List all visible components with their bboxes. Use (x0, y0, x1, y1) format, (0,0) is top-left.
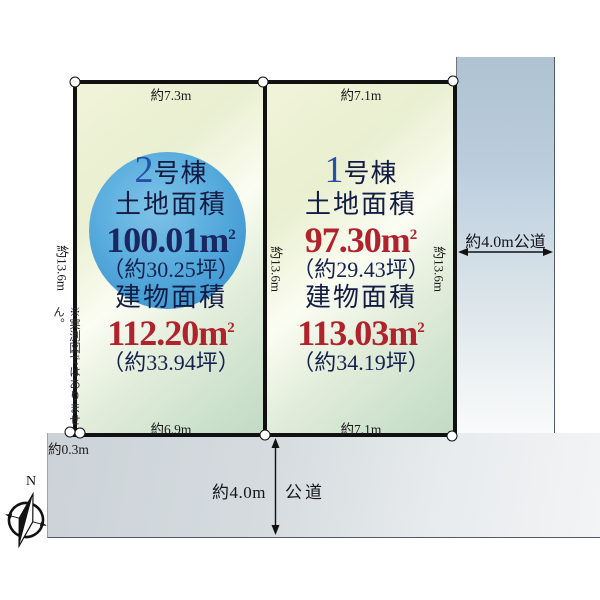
disclaimer-note: ※実測図ではありません。 (50, 306, 82, 438)
plot-2-title: 2号棟 (79, 153, 263, 191)
vertex-bottom-right (447, 431, 458, 442)
unit-sup: 2 (417, 320, 425, 336)
bottom-road-width-label: 約4.0m (184, 478, 266, 503)
dim-plot1-bottom: 約7.1m (269, 418, 453, 438)
unit-sup: 2 (228, 227, 236, 243)
plot-2-building-tsubo: （約33.94坪） (79, 349, 263, 377)
vertex-top-right (448, 76, 459, 87)
north-compass-icon: N (2, 468, 54, 562)
vertex-bottom-middle (260, 430, 271, 441)
plot-1-title: 1号棟 (269, 153, 453, 191)
plot-1-building-tsubo: （約34.19坪） (269, 349, 453, 377)
dim-plot2-bottom: 約6.9m (79, 418, 263, 438)
plot-2-info: 2号棟 土地面積 100.01m2 （約30.25坪） 建物面積 112.20m… (79, 153, 263, 377)
bottom-road-width-arrow (269, 437, 282, 536)
plot-1-land-label: 土地面積 (269, 191, 453, 219)
vertex-top-left (70, 77, 81, 88)
dim-plot2-top: 約7.3m (79, 84, 263, 104)
plot-1-land-tsubo: （約29.43坪） (269, 256, 453, 284)
neighbor-block (556, 57, 600, 435)
unit-sup: 2 (227, 320, 235, 336)
lot-layout-diagram: 2号棟 土地面積 100.01m2 （約30.25坪） 建物面積 112.20m… (0, 0, 600, 600)
unit-m: m (388, 313, 417, 353)
plot-1-number: 1 (324, 149, 343, 191)
bottom-road-name-label: 公道 (285, 478, 325, 503)
dim-plot1-top: 約7.1m (269, 84, 453, 104)
unit-m: m (381, 220, 410, 260)
plot-1-suffix: 号棟 (343, 159, 397, 188)
plot-1-info: 1号棟 土地面積 97.30m2 （約29.43坪） 建物面積 113.03m2… (269, 153, 453, 377)
plot-2-suffix: 号棟 (153, 159, 207, 188)
plot-1-land-value: 97.30m2 (269, 219, 453, 256)
vertex-top-middle (258, 77, 269, 88)
plot-2-number: 2 (134, 149, 153, 191)
dim-side-middle: 約13.6m (268, 246, 287, 292)
unit-sup: 2 (410, 227, 418, 243)
unit-m: m (199, 220, 228, 260)
plot-1-building-value: 113.03m2 (269, 312, 453, 349)
plot-1-building-label: 建物面積 (269, 284, 453, 312)
plot-2-land-tsubo: （約30.25坪） (79, 256, 263, 284)
plot-2-land-label: 土地面積 (79, 191, 263, 219)
dim-side-right: 約13.6m (431, 246, 450, 292)
plot-2-land-value: 100.01m2 (79, 219, 263, 256)
dim-offset-bottom-left: 約0.3m (48, 438, 89, 458)
vertex-bottom-left-b (75, 428, 86, 439)
plot-2-building-label: 建物面積 (79, 284, 263, 312)
dim-side-left: 約13.6m (54, 245, 73, 291)
plot-2-building-value: 112.20m2 (79, 312, 263, 349)
unit-m: m (198, 313, 227, 353)
right-road-width-arrow (457, 245, 554, 259)
compass-north-letter: N (26, 474, 36, 489)
